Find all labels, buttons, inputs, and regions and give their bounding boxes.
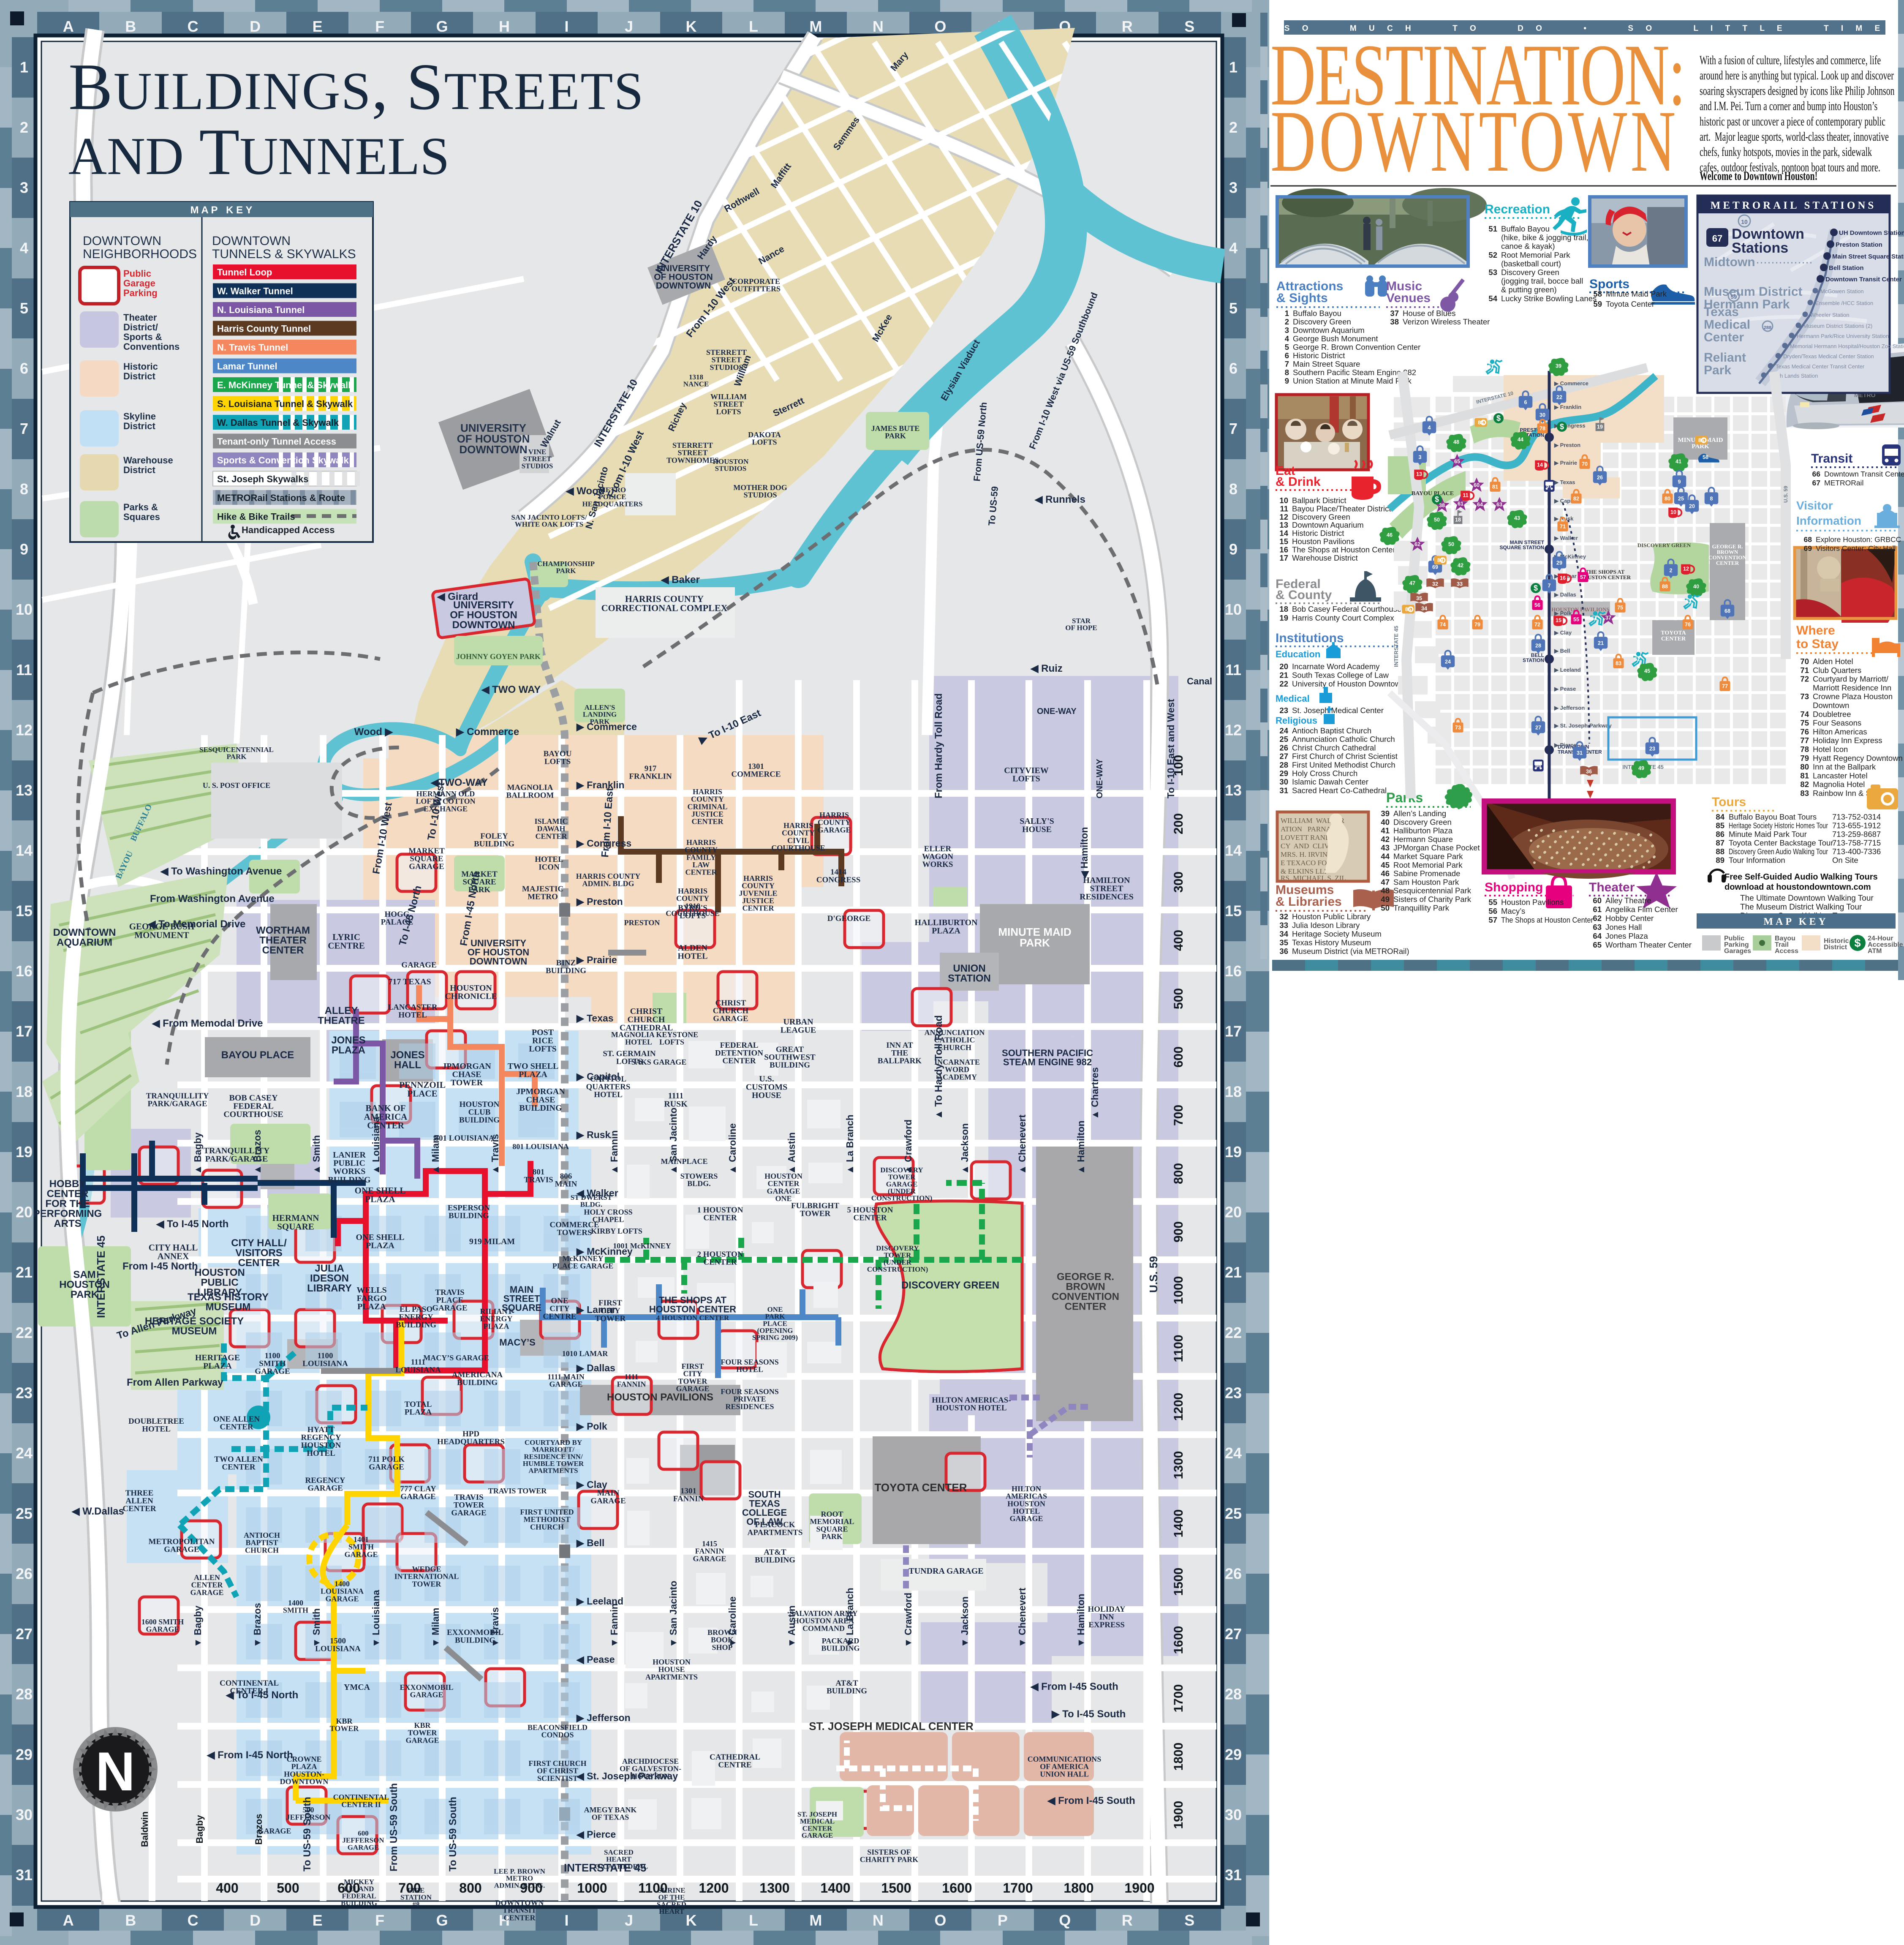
svg-text:TRAVISTOWERGARAGE: TRAVISTOWERGARAGE [451,1493,486,1517]
svg-text:30: 30 [1540,412,1545,418]
svg-text:600: 600 [1172,1046,1186,1068]
svg-text:19: 19 [16,1143,33,1160]
svg-text:50: 50 [1381,903,1390,912]
svg-text:800: 800 [1172,1163,1186,1184]
svg-text:64: 64 [1477,501,1483,507]
svg-text:6: 6 [20,360,28,377]
svg-text:73: 73 [1800,692,1809,701]
svg-text:6: 6 [1285,351,1289,360]
svg-text:◀ Hamilton: ◀ Hamilton [1079,827,1090,879]
svg-text:60: 60 [1474,482,1480,488]
svg-text:15: 15 [1556,617,1561,623]
svg-text:ST. JOSEPH MEDICAL CENTER: ST. JOSEPH MEDICAL CENTER [809,1720,974,1733]
svg-text:I: I [565,18,569,35]
svg-text:Holiday Inn Express: Holiday Inn Express [1813,736,1882,745]
svg-text:D'GEORGE: D'GEORGE [827,914,870,923]
svg-text:U.S. 59: U.S. 59 [1147,1256,1160,1293]
svg-text:▲ Crawford: ▲ Crawford [903,1120,914,1174]
svg-text:5: 5 [20,300,28,317]
svg-text:13: 13 [16,782,33,799]
svg-text:Downtown Transit Center: Downtown Transit Center [1825,276,1902,283]
svg-text:82: 82 [1573,496,1579,501]
svg-text:50: 50 [1434,517,1440,523]
svg-text:URBANLEAGUE: URBANLEAGUE [781,1017,816,1035]
svg-text:Downtown Aquarium: Downtown Aquarium [1293,326,1365,335]
svg-text:D: D [250,18,261,35]
svg-text:32: 32 [1279,912,1288,921]
svg-text:29: 29 [16,1746,33,1763]
svg-text:10: 10 [1225,601,1242,618]
svg-text:U. S. POST OFFICE: U. S. POST OFFICE [203,781,270,790]
svg-text:1900: 1900 [1172,1801,1186,1829]
svg-text:DISCOVERY GREEN: DISCOVERY GREEN [1637,542,1691,548]
svg-text:Lucky Strike Bowling Lanes: Lucky Strike Bowling Lanes [1501,294,1597,303]
svg-text:Q: Q [1059,1912,1071,1929]
svg-text:$: $ [1534,584,1538,592]
svg-text:▶ Preston: ▶ Preston [1554,442,1580,448]
svg-text:12: 12 [16,721,33,738]
svg-text:D: D [250,1912,261,1929]
svg-text:89: 89 [1437,557,1443,563]
svg-text:& putting green): & putting green) [1501,285,1557,294]
svg-text:◀ From Memodal Drive: ◀ From Memodal Drive [152,1018,263,1029]
svg-text:E. McKinney Tunnel & Skywalk: E. McKinney Tunnel & Skywalk [217,380,354,390]
svg-text:24: 24 [16,1444,33,1462]
svg-text:& Sights: & Sights [1276,291,1328,305]
svg-text:▼ Brazos: ▼ Brazos [252,1603,263,1648]
svg-text:Julia Ideson Library: Julia Ideson Library [1292,921,1360,930]
svg-text:From US-59 South: From US-59 South [388,1783,400,1871]
svg-text:Club Quarters: Club Quarters [1813,666,1861,675]
svg-text:62: 62 [1593,914,1602,923]
svg-text:Transit: Transit [1811,452,1852,466]
svg-text:79: 79 [1474,621,1480,627]
svg-text:25: 25 [1225,1505,1242,1522]
svg-text:▶ Polk: ▶ Polk [576,1421,607,1432]
svg-text:14: 14 [1225,842,1242,859]
svg-text:HOTELICON: HOTELICON [535,855,563,872]
svg-text:700: 700 [1172,1105,1186,1126]
svg-text:◀ Baker: ◀ Baker [661,574,700,586]
svg-text:HERMANN OLDLOFTS COTTONEXCHANG: HERMANN OLDLOFTS COTTONEXCHANGE [416,790,475,813]
svg-text:▶ Franklin: ▶ Franklin [576,779,625,790]
svg-text:INTERSTATE 45: INTERSTATE 45 [1393,626,1399,667]
svg-text:▼ Chenevert: ▼ Chenevert [1017,1588,1028,1648]
svg-text:15: 15 [1225,902,1242,919]
svg-text:Discovery Green: Discovery Green [1501,268,1559,277]
svg-text:13: 13 [1225,782,1242,799]
svg-text:Annunciation Catholic Church: Annunciation Catholic Church [1292,735,1395,744]
svg-text:36: 36 [1279,947,1288,956]
svg-text:Parks: Parks [1386,790,1423,805]
svg-text:SAN JACINTO LOFTS/WHITE OAK LO: SAN JACINTO LOFTS/WHITE OAK LOFTS [511,513,587,528]
svg-text:CHRISTCHURCHGARAGE: CHRISTCHURCHGARAGE [713,999,749,1023]
svg-text:2: 2 [1229,119,1238,136]
svg-text:CY AND CLIVE: CY AND CLIVE [1281,842,1334,850]
svg-text:Lamar Tunnel: Lamar Tunnel [217,361,277,372]
svg-text:◀ Girard: ◀ Girard [437,591,478,602]
svg-text:▶ To I-45 South: ▶ To I-45 South [1051,1708,1126,1720]
svg-text:35: 35 [1416,595,1422,601]
svg-text:801 LOUISIANA: 801 LOUISIANA [512,1142,569,1151]
svg-text:6: 6 [1229,360,1238,377]
svg-text:Houston Public Library: Houston Public Library [1292,912,1371,921]
svg-text:34: 34 [1279,929,1288,938]
svg-text:88: 88 [1662,583,1668,589]
svg-text:Halliburton Plaza: Halliburton Plaza [1393,826,1453,835]
svg-text:G: G [436,18,448,35]
svg-text:Crowne Plaza Houston: Crowne Plaza Houston [1813,692,1893,701]
svg-text:HistoricDistrict: HistoricDistrict [1824,937,1849,951]
svg-text:42: 42 [1381,835,1390,844]
svg-text:Hermann Square: Hermann Square [1393,835,1453,844]
svg-text:E: E [313,18,323,35]
svg-text:ONE-WAY: ONE-WAY [1095,759,1104,798]
svg-text:Discovery Green Audio Walking: Discovery Green Audio Walking Tour [1729,847,1828,856]
svg-text:62: 62 [1414,541,1420,547]
svg-text:Hike & Bike Trails: Hike & Bike Trails [217,512,295,522]
svg-text:Root Memorial Park: Root Memorial Park [1393,861,1463,869]
svg-text:Alley Theatre: Alley Theatre [1605,896,1651,905]
svg-text:88: 88 [1716,847,1724,856]
svg-text:21: 21 [1225,1264,1242,1281]
svg-text:24: 24 [1279,726,1288,735]
svg-text:29: 29 [1556,560,1562,566]
svg-text:20: 20 [1225,1204,1242,1221]
svg-text:15: 15 [1279,537,1288,546]
svg-text:300: 300 [1172,872,1186,893]
svg-text:DISCOVERY GREEN: DISCOVERY GREEN [901,1280,999,1291]
svg-text:Tours: Tours [1712,795,1746,809]
svg-text:19: 19 [1279,613,1288,622]
svg-text:65: 65 [1454,458,1460,464]
svg-text:21: 21 [1279,671,1288,680]
svg-text:Visitor: Visitor [1796,499,1833,512]
svg-text:86: 86 [1698,437,1704,443]
svg-text:Wortham Theater Center: Wortham Theater Center [1605,940,1692,949]
svg-text:BAYOU PLACE: BAYOU PLACE [221,1049,294,1061]
svg-text:DOWNTOWN: DOWNTOWN [1270,93,1679,190]
svg-text:M: M [809,1912,822,1929]
svg-text:Medical: Medical [1276,693,1310,704]
svg-text:To US-59 South: To US-59 South [447,1797,459,1871]
svg-text:31: 31 [1577,750,1583,756]
svg-text:▼ Smith: ▼ Smith [311,1608,322,1648]
svg-text:47: 47 [1409,580,1415,586]
svg-text:29: 29 [1279,769,1288,778]
svg-text:George Bush Monument: George Bush Monument [1293,334,1378,343]
svg-text:▼ Hamilton: ▼ Hamilton [1075,1594,1086,1648]
svg-text:canoe & kayak): canoe & kayak) [1501,242,1555,251]
svg-text:37: 37 [1390,309,1399,318]
svg-text:N: N [873,1912,884,1929]
svg-text:historic past or uncover a pie: historic past or uncover a piece of cont… [1700,115,1885,128]
svg-text:17: 17 [1279,553,1288,562]
svg-text:ALDENHOTEL: ALDENHOTEL [677,943,707,961]
svg-text:PRESTON: PRESTON [624,918,660,927]
svg-text:Bell Station: Bell Station [1829,264,1864,272]
svg-text:LANIERPUBLICWORKSBUILDING: LANIERPUBLICWORKSBUILDING [328,1150,371,1185]
svg-text:Wheeler Station: Wheeler Station [1810,312,1850,318]
svg-text:HistoricDistrict: HistoricDistrict [123,361,158,381]
svg-text:▶ Commerce: ▶ Commerce [576,721,637,732]
svg-text:CONTINENTALCENTER II: CONTINENTALCENTER II [333,1793,389,1809]
svg-text:▲ San Jacinto: ▲ San Jacinto [668,1108,679,1174]
svg-text:Sisters of Charity Park: Sisters of Charity Park [1393,895,1472,904]
svg-text:8: 8 [1285,368,1289,377]
svg-text:31: 31 [1279,786,1288,795]
svg-text:Houston Pavilions: Houston Pavilions [1501,898,1564,907]
svg-text:▼ Travis: ▼ Travis [490,1607,500,1648]
svg-text:N. Travis Tunnel: N. Travis Tunnel [217,342,288,353]
svg-text:Minute Maid Park Tour: Minute Maid Park Tour [1729,830,1807,839]
svg-text:Religious: Religious [1276,715,1317,726]
svg-text:CITY HALL/VISITORSCENTER: CITY HALL/VISITORSCENTER [231,1237,287,1269]
svg-text:72: 72 [1534,621,1540,627]
svg-text:MACY’S GARAGE: MACY’S GARAGE [423,1354,489,1362]
svg-text:Brazos: Brazos [253,1814,264,1844]
svg-text:L: L [749,1912,758,1929]
svg-text:▼ Crawford: ▼ Crawford [903,1593,914,1648]
svg-text:ST. JOSEPHMEDICALCENTERGARAGE: ST. JOSEPHMEDICALCENTERGARAGE [797,1810,837,1839]
svg-text:▼ Louisiana: ▼ Louisiana [370,1590,381,1648]
svg-text:F: F [375,1912,384,1929]
svg-text:▲ Smith: ▲ Smith [311,1135,322,1174]
svg-text:Discovery Green: Discovery Green [1293,317,1351,326]
svg-text:84: 84 [1478,420,1484,425]
svg-text:1111 MAINGARAGE: 1111 MAINGARAGE [547,1373,585,1389]
svg-text:26: 26 [1279,743,1288,752]
svg-text:From Hardy Toll Road: From Hardy Toll Road [933,693,944,798]
svg-text:BAYOU PLACE: BAYOU PLACE [1412,490,1454,497]
svg-text:▲ To Hardy Toll Road: ▲ To Hardy Toll Road [933,1015,944,1120]
svg-text:16: 16 [1560,575,1566,581]
svg-text:42: 42 [1458,562,1463,568]
svg-text:S: S [1184,1912,1194,1929]
svg-text:45: 45 [1644,668,1650,674]
svg-text:Sam Houston Park: Sam Houston Park [1393,877,1459,886]
svg-text:& Drink: & Drink [1276,475,1321,489]
svg-text:HOUSTON PAVILIONS: HOUSTON PAVILIONS [607,1392,713,1403]
svg-text:Toyota Center: Toyota Center [1606,300,1654,308]
svg-text:26: 26 [1225,1565,1242,1582]
svg-text:E: E [313,1912,323,1929]
svg-text:31: 31 [16,1866,33,1884]
svg-text:around here is anything but ty: around here is anything but typical. Loo… [1700,69,1894,83]
svg-text:$: $ [1854,937,1860,949]
svg-text:Texas History Museum: Texas History Museum [1292,938,1371,947]
svg-text:▶ McKinney: ▶ McKinney [576,1246,633,1257]
svg-text:W. Dallas Tunnel & Skywalk: W. Dallas Tunnel & Skywalk [217,417,339,428]
svg-text:From Washington Avenue: From Washington Avenue [150,893,275,904]
svg-text:soaring skyscrapers designed b: soaring skyscrapers designed by icons li… [1700,84,1895,98]
svg-text:16: 16 [16,962,33,980]
svg-text:To US-59 South: To US-59 South [302,1797,313,1871]
svg-text:AMERICANABUILDING: AMERICANABUILDING [452,1370,503,1387]
svg-text:Baldwin: Baldwin [139,1812,150,1847]
svg-text:49: 49 [1638,765,1644,771]
svg-text:25: 25 [1279,735,1288,744]
svg-text:▲ Brazos: ▲ Brazos [252,1130,263,1174]
svg-text:▶ Dallas: ▶ Dallas [1554,591,1576,598]
svg-text:1700: 1700 [1172,1684,1186,1713]
svg-text:▲ Jackson: ▲ Jackson [959,1123,970,1174]
svg-text:51: 51 [1488,224,1497,233]
svg-text:400: 400 [1172,930,1186,951]
svg-text:Four Seasons: Four Seasons [1813,719,1861,727]
svg-text:Hotel Icon: Hotel Icon [1813,745,1848,754]
svg-text:67: 67 [1712,233,1722,244]
svg-text:▶ Texas: ▶ Texas [1554,479,1575,485]
svg-text:22: 22 [1225,1324,1242,1341]
svg-text:12: 12 [1279,512,1288,521]
svg-text:1900: 1900 [1124,1880,1154,1896]
svg-text:& Libraries: & Libraries [1276,895,1342,909]
svg-text:78: 78 [1540,425,1545,431]
svg-text:◀ Pease: ◀ Pease [576,1654,615,1665]
svg-text:54: 54 [1591,616,1597,621]
svg-text:1: 1 [1229,58,1238,76]
svg-text:28: 28 [1279,760,1288,769]
svg-text:House of Blues: House of Blues [1403,309,1455,318]
svg-text:▶ Dallas: ▶ Dallas [576,1362,615,1373]
svg-text:MAJESTICMETRO: MAJESTICMETRO [522,885,563,902]
svg-text:10: 10 [1670,509,1676,515]
svg-text:O: O [934,18,946,35]
svg-text:HERMANNSQUARE: HERMANNSQUARE [272,1213,319,1232]
svg-text:N. Louisiana Tunnel: N. Louisiana Tunnel [217,305,305,315]
svg-text:TRAVISPLACEGARAGE: TRAVISPLACEGARAGE [432,1288,467,1313]
svg-text:JONESHALL: JONESHALL [390,1049,424,1071]
svg-text:28: 28 [16,1686,33,1703]
svg-text:M: M [809,18,822,35]
svg-text:B: B [125,18,136,35]
svg-text:67: 67 [1546,483,1552,489]
svg-text:The Ultimate Downtown Walking: The Ultimate Downtown Walking Tour [1740,894,1874,903]
svg-text:68: 68 [1804,535,1812,544]
svg-text:48: 48 [1381,886,1390,895]
svg-text:▶ Lamar: ▶ Lamar [576,1304,616,1315]
svg-text:$: $ [1560,422,1564,431]
svg-text:1600: 1600 [942,1880,972,1896]
svg-text:St. Joseph Medical Center: St. Joseph Medical Center [1292,706,1384,715]
svg-text:69: 69 [1432,564,1438,570]
svg-text:900: 900 [1172,1221,1186,1242]
svg-text:80: 80 [1800,763,1809,771]
svg-text:83: 83 [1616,660,1621,666]
svg-text:Sabine Promenade: Sabine Promenade [1393,869,1460,878]
svg-text:HARRISCOUNTYCRIMINALJUSTICECEN: HARRISCOUNTYCRIMINALJUSTICECENTER [687,787,727,826]
svg-text:35: 35 [1279,938,1288,947]
svg-text:43: 43 [1381,843,1390,852]
svg-text:YMCA: YMCA [344,1683,370,1692]
svg-text:ISLAMICDAWAHCENTER: ISLAMICDAWAHCENTER [534,817,568,840]
svg-text:Welcome to Downtown Houston!: Welcome to Downtown Houston! [1700,169,1817,183]
svg-text:30: 30 [1225,1806,1242,1823]
svg-text:23: 23 [1279,706,1288,715]
svg-text:63: 63 [1496,501,1502,507]
svg-text:Warehouse District: Warehouse District [1292,553,1358,562]
svg-text:▲ Austin: ▲ Austin [786,1132,797,1174]
svg-text:4: 4 [1428,425,1431,430]
svg-text:27: 27 [16,1625,33,1643]
svg-text:1600 SMITHGARAGE: 1600 SMITHGARAGE [141,1618,184,1634]
svg-text:◀ From I-45 South: ◀ From I-45 South [1047,1795,1135,1806]
svg-text:A: A [63,1912,74,1929]
svg-text:Shopping: Shopping [1485,880,1543,894]
svg-text:50: 50 [1448,541,1454,547]
svg-text:TOYOTACENTER: TOYOTACENTER [1661,630,1686,642]
svg-text:4: 4 [1229,239,1238,256]
svg-text:TRAVIS TOWER: TRAVIS TOWER [488,1487,547,1495]
svg-text:R: R [1122,1912,1133,1929]
svg-text:Downtown: Downtown [1813,701,1849,710]
svg-text:Islamic Dawah Center: Islamic Dawah Center [1292,777,1368,786]
svg-text:7: 7 [20,420,28,437]
svg-text:53: 53 [1686,599,1692,605]
svg-text:700: 700 [398,1880,421,1896]
svg-text:Buffalo Bayou: Buffalo Bayou [1501,224,1550,233]
svg-text:CORPORATEOUTFITTERS: CORPORATEOUTFITTERS [732,277,781,293]
svg-text:ALLENCENTERGARAGE: ALLENCENTERGARAGE [190,1573,223,1596]
svg-text:27: 27 [1279,752,1288,761]
svg-text:RILIANTENERGYPLAZA: RILIANTENERGYPLAZA [480,1307,512,1330]
svg-text:Buffalo Bayou Boat Tours: Buffalo Bayou Boat Tours [1729,812,1817,821]
svg-text:ONE-WAY: ONE-WAY [1037,707,1077,716]
svg-text:GARAGE: GARAGE [401,961,436,970]
svg-text:C: C [188,1912,199,1929]
svg-text:◀ Ruiz: ◀ Ruiz [1030,663,1063,674]
svg-text:Marriott Residence Inn: Marriott Residence Inn [1813,683,1891,692]
svg-text:▶ Texas: ▶ Texas [576,1013,614,1024]
svg-text:ANTIOCHBAPTISTCHURCH: ANTIOCHBAPTISTCHURCH [244,1531,280,1554]
svg-text:INTERSTATE 45: INTERSTATE 45 [95,1235,107,1318]
svg-text:WELLSFARGOPLAZA: WELLSFARGOPLAZA [356,1286,386,1311]
svg-text:◀ To I-45 North: ◀ To I-45 North [156,1218,228,1230]
svg-text:▶ Clay: ▶ Clay [1554,629,1572,636]
svg-text:9: 9 [1285,376,1289,385]
svg-text:First United Methodist Church: First United Methodist Church [1292,760,1395,769]
svg-text:51: 51 [1488,364,1494,370]
svg-text:Discovery Green: Discovery Green [1292,512,1350,521]
svg-text:2: 2 [20,119,28,136]
svg-text:16: 16 [1225,962,1242,980]
svg-text:COMMERCETOWERS: COMMERCETOWERS [549,1220,599,1237]
svg-text:500: 500 [277,1880,299,1896]
svg-text:800: 800 [459,1880,481,1896]
svg-text:Tenant-only Tunnel Access: Tenant-only Tunnel Access [217,436,336,447]
svg-text:76: 76 [1685,621,1691,627]
svg-text:10: 10 [16,601,33,618]
svg-text:43: 43 [1514,515,1520,521]
svg-text:28: 28 [1225,1686,1242,1703]
svg-text:711 POLKGARAGE: 711 POLKGARAGE [368,1455,405,1472]
svg-text:1010 LAMAR: 1010 LAMAR [562,1349,608,1358]
svg-text:▶ Jefferson: ▶ Jefferson [576,1712,631,1723]
svg-text:34: 34 [1421,605,1427,611]
svg-text:Bayou Place/Theater District: Bayou Place/Theater District [1292,504,1391,513]
svg-text:From Allen Parkway: From Allen Parkway [127,1377,223,1388]
svg-text:7: 7 [1548,583,1551,588]
svg-text:Hyatt Regency Downtown: Hyatt Regency Downtown [1813,754,1903,763]
svg-text:UNIVERSITYOF HOUSTONDOWNTOWN: UNIVERSITYOF HOUSTONDOWNTOWN [457,422,530,456]
svg-text:(basketball court): (basketball court) [1501,259,1561,268]
svg-text:Dryden/Texas Medical Center St: Dryden/Texas Medical Center Station [1783,353,1874,360]
svg-text:31: 31 [1225,1866,1242,1884]
svg-text:713-758-7715: 713-758-7715 [1832,839,1881,847]
svg-text:HARRISCOUNTYFAMILYLAWCENTER: HARRISCOUNTYFAMILYLAWCENTER [685,838,718,877]
svg-text:70: 70 [1582,461,1588,467]
